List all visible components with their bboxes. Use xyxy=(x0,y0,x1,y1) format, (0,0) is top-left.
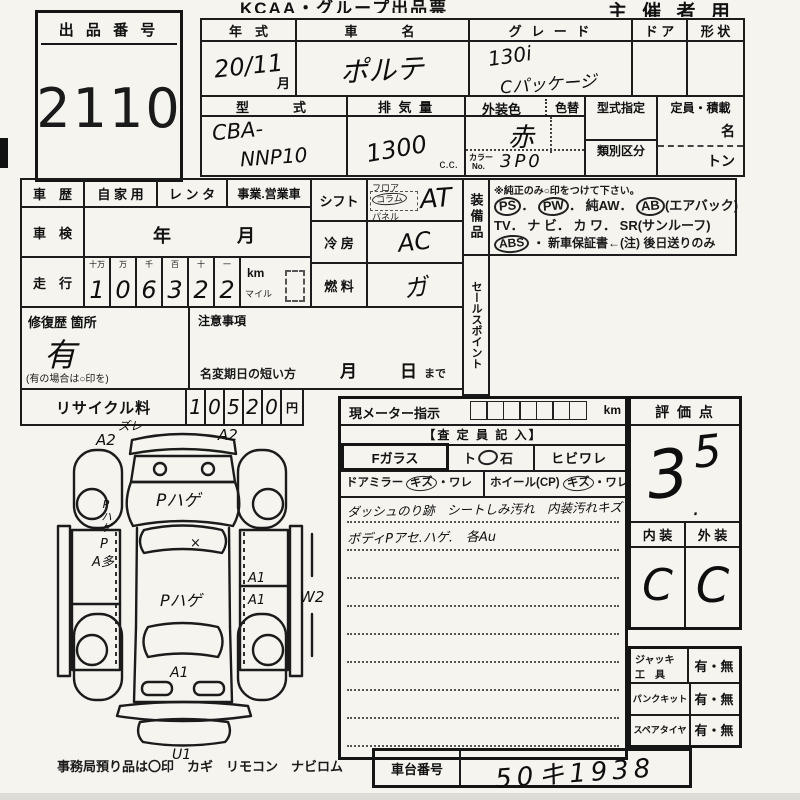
class-division-label: 類別区分 xyxy=(586,139,656,159)
wheel-ware: ・ワレ xyxy=(594,477,629,489)
color-value-cell: 赤 カラー No. 3P0 xyxy=(464,115,586,177)
door-value-cell xyxy=(631,40,688,97)
history-label: 車 歴 xyxy=(20,178,85,208)
mark-right-door-1: A1 xyxy=(247,571,265,586)
shaken-year-unit: 年 xyxy=(153,222,171,248)
jack-label-line2: 工 具 xyxy=(635,666,687,681)
tail-light-right xyxy=(194,682,224,695)
stone-chip-right: 石 xyxy=(500,448,513,467)
shift-dashed-box xyxy=(370,191,418,211)
type-designation-cell: 型式指定 類別区分 xyxy=(584,95,658,177)
meter-digit-box xyxy=(519,401,537,420)
fuel-label: 燃 料 xyxy=(310,262,368,308)
jack-value: 有・無 xyxy=(689,649,739,682)
interior-label: 内 装 xyxy=(631,523,686,546)
caution-box: 注意事項 名変期日の短い方 月 日 まで xyxy=(188,306,464,390)
sheet-owner-label: 主 催 者 用 xyxy=(608,0,788,17)
sheet-title-right-clip: 主 催 者 用 xyxy=(608,0,788,17)
shift-label: シフト xyxy=(310,178,368,222)
rear-window-shape xyxy=(144,623,223,657)
mirror-wheel-row: ドアミラー キズ・ワレ ホイール(CP) キズ・ワレ xyxy=(341,470,625,498)
grade-value-cell: 130i Cパッケージ xyxy=(468,40,633,97)
meter-digit-box xyxy=(486,401,504,420)
wiper-pivot-right xyxy=(202,463,214,475)
comment-ruled-line xyxy=(347,717,619,719)
wheel-rear-left xyxy=(77,635,107,665)
name-value-cell: ポルテ xyxy=(295,40,470,97)
mark-windshield-x: × xyxy=(190,536,201,551)
left-door-panel xyxy=(72,530,120,670)
name-value: ポルテ xyxy=(339,46,425,90)
inspector-comment-2: ボディPアセ.ハゲ. 各Au xyxy=(347,526,496,548)
lot-label: 出 品 番 号 xyxy=(41,15,177,45)
model-value-cell: CBA- NNP10 xyxy=(200,115,348,177)
mark-front-right: A2 xyxy=(217,426,238,444)
capacity-tons-unit: トン xyxy=(707,151,735,171)
shift-value: AT xyxy=(419,183,453,215)
comment-ruled-line xyxy=(347,745,619,747)
comment-ruled-line xyxy=(347,577,619,579)
shape-value-cell xyxy=(686,40,745,97)
mileage-label: 走 行 xyxy=(20,256,85,308)
cooling-label: 冷 房 xyxy=(310,220,368,264)
wheel-cell: ホイール(CP) キズ・ワレ xyxy=(485,470,625,496)
door-header: ド ア xyxy=(631,18,688,42)
meter-digit-boxes xyxy=(471,401,587,425)
equipment-vertical-label: 装備品 xyxy=(464,180,490,254)
auction-sheet: KCAA・グループ出品票 主 催 者 用 出 品 番 号 2110 年 式 車 … xyxy=(0,0,800,800)
capacity-divider xyxy=(658,145,743,147)
inspector-comment-1: ダッシュのり跡 シートしみ汚れ 内装汚れキズ xyxy=(347,497,622,521)
repair-label: 修復歴 箇所 xyxy=(28,312,97,331)
color-no-value: 3P0 xyxy=(500,151,543,172)
shaken-label: 車 検 xyxy=(20,206,85,258)
rename-month-unit: 月 xyxy=(340,357,357,382)
repair-box: 修復歴 箇所 有 (有の場合は○印を) xyxy=(20,306,190,390)
mark-left-door: A多 xyxy=(91,555,115,570)
mark-front-left-note: ズレ xyxy=(118,419,142,433)
mileage-digit-6: 一 2 xyxy=(213,256,241,308)
meter-digit-box xyxy=(470,401,488,420)
door-mirror-kizu: キズ xyxy=(406,475,438,492)
stone-chip-cell: ト 石 xyxy=(443,444,535,470)
mark-rear-bumper: U1 xyxy=(172,747,191,762)
grade-header: グ レ ー ド xyxy=(468,18,633,42)
mileage-mile-checkbox xyxy=(285,270,305,302)
stone-chip-circle-mark xyxy=(477,448,500,467)
type-designation-label: 型式指定 xyxy=(586,99,656,116)
chassis-value: 50キ1938 xyxy=(494,747,656,795)
year-header: 年 式 xyxy=(200,18,297,42)
scan-artifact-bar xyxy=(0,138,8,168)
mileage-digit: 0 xyxy=(111,274,135,306)
equipment-box: 装備品 ※純正のみ○印をつけて下さい。 PS． PW． 純AW． AB(エアバッ… xyxy=(462,178,737,256)
color-no-row: カラー No. 3P0 xyxy=(466,149,584,175)
history-opt-rental: レ ン タ xyxy=(156,178,228,208)
rear-skirt-shape xyxy=(138,719,230,746)
mileage-digit: 2 xyxy=(215,274,239,306)
door-mirror-cell: ドアミラー キズ・ワレ xyxy=(341,470,485,496)
equipment-line1: PS． PW． 純AW． AB(エアバック) xyxy=(494,195,738,216)
comment-ruled-line xyxy=(347,605,619,607)
sheet-title: KCAA・グループ出品票 xyxy=(240,0,540,13)
meter-digit-box xyxy=(569,401,587,420)
color-header-cell: 外装色 色替 xyxy=(464,95,586,117)
repair-note: (有の場合は○印を) xyxy=(26,370,109,385)
mileage-km-unit: km xyxy=(247,266,264,280)
color-change-header: 色替 xyxy=(545,99,579,116)
car-damage-diagram: ズレ A2 A2 Pハゲ Pハゲ × P A多 Pハゲ A1 A1 W2 A1 … xyxy=(22,414,338,762)
mileage-place-label: 十万 xyxy=(85,259,109,270)
mileage-digit-3: 千 6 xyxy=(135,256,163,308)
mileage-digit: 3 xyxy=(163,274,187,306)
interior-exterior-values: C C xyxy=(631,544,739,627)
comment-ruled-line xyxy=(347,549,619,551)
mileage-digit-2: 万 0 xyxy=(109,256,137,308)
roof-right-edge xyxy=(229,528,230,627)
comment-ruled-line xyxy=(347,521,619,523)
rename-until-label: まで xyxy=(424,365,446,381)
tools-row-jack: ジャッキ 工 具 有・無 xyxy=(631,649,739,684)
tailgate-right-edge xyxy=(230,627,232,702)
front-glass-cell: Fガラス xyxy=(341,443,449,471)
chassis-box: 車台番号 50キ1938 xyxy=(372,748,692,788)
mark-hood: Pハゲ xyxy=(156,491,203,511)
mileage-digit: 1 xyxy=(85,274,109,306)
cooling-value: AC xyxy=(397,226,433,257)
wheel-kizu: キズ xyxy=(562,475,594,492)
fuel-value-cell: ガ xyxy=(366,262,464,308)
mileage-digit: 2 xyxy=(189,274,213,306)
grade-line1: 130i xyxy=(487,41,534,71)
windshield-shape xyxy=(140,526,226,554)
equipment-ps: PS xyxy=(493,196,522,217)
sales-point-label: セールスポイント xyxy=(464,260,488,390)
tailgate-left-edge xyxy=(134,627,136,702)
rating-score-point: . xyxy=(691,498,700,521)
model-line2: NNP10 xyxy=(239,143,308,172)
year-month-suffix: 月 xyxy=(277,73,290,92)
displacement-value-cell: 1300 c.c. xyxy=(346,115,466,177)
equipment-warranty: ・ 新車保証書←(注) 後日送りのみ xyxy=(533,236,716,250)
equipment-abs: ABS xyxy=(493,234,529,254)
meter-label: 現メーター指示 xyxy=(349,403,440,422)
comment-ruled-line xyxy=(347,661,619,663)
equipment-aw: 純AW． xyxy=(586,198,633,213)
puncture-kit-value: 有・無 xyxy=(689,682,739,714)
equipment-line2: TV． ナ ビ． カ ワ． SR(サンルーフ) xyxy=(494,215,711,234)
rename-deadline-label: 名変期日の短い方 xyxy=(200,365,296,382)
wiper-pivot-left xyxy=(154,463,166,475)
exterior-label: 外 装 xyxy=(686,523,739,546)
jack-label: ジャッキ 工 具 xyxy=(631,649,689,682)
spare-tire-label: スペアタイヤ xyxy=(631,714,691,745)
sales-point-strip: セールスポイント xyxy=(462,254,490,396)
mark-right-side: W2 xyxy=(300,588,324,606)
mileage-unit-cell: km マイル xyxy=(239,256,312,308)
mileage-place-label: 千 xyxy=(137,259,161,270)
equipment-pw: PW xyxy=(537,196,569,217)
mileage-place-label: 一 xyxy=(215,259,239,270)
crack-cell: ヒビワレ xyxy=(533,444,625,470)
wheel-label: ホイール(CP) xyxy=(490,477,560,489)
comment-ruled-line xyxy=(347,633,619,635)
rename-day-unit: 日 xyxy=(400,357,417,382)
door-mirror-label: ドアミラー xyxy=(346,477,403,489)
tools-row-punctureskit: パンクキット 有・無 xyxy=(631,682,739,716)
meter-digit-box xyxy=(552,401,570,420)
chassis-label: 車台番号 xyxy=(375,751,461,785)
shape-header: 形 状 xyxy=(686,18,745,42)
mileage-place-label: 万 xyxy=(111,259,135,270)
stone-chip-left: ト xyxy=(463,448,476,467)
sheet-title-clip: KCAA・グループ出品票 xyxy=(240,0,540,13)
comment-ruled-line xyxy=(347,689,619,691)
exterior-grade: C xyxy=(686,544,739,627)
displacement-header: 排 気 量 xyxy=(346,95,466,117)
model-line1: CBA- xyxy=(211,117,264,145)
wheel-rear-right xyxy=(253,635,283,665)
equipment-ab: AB xyxy=(636,196,666,217)
cowl-shape xyxy=(131,456,235,482)
displacement-unit: c.c. xyxy=(439,157,458,171)
history-opt-private: 自 家 用 xyxy=(83,178,158,208)
meter-digit-box xyxy=(503,401,521,420)
mileage-place-label: 百 xyxy=(163,259,187,270)
capacity-cell: 定員・積載 名 トン xyxy=(656,95,745,177)
shift-value-cell: フロア コラム パネル AT xyxy=(366,178,464,222)
roof-left-edge xyxy=(136,528,137,627)
fuel-value: ガ xyxy=(401,266,430,304)
meter-digit-box xyxy=(536,401,554,420)
mileage-digit: 6 xyxy=(137,274,161,306)
capacity-label: 定員・積載 xyxy=(658,99,743,116)
left-sill-strip xyxy=(58,526,70,676)
history-opt-business: 事業.営業車 xyxy=(226,178,312,208)
rating-score-frac: 5 xyxy=(691,429,723,476)
equipment-sep: ． xyxy=(521,198,534,213)
equipment-line3: ABS ・ 新車保証書←(注) 後日送りのみ xyxy=(494,234,715,253)
glass-row: Fガラス ト 石 ヒビワレ xyxy=(341,444,625,472)
mark-left-door-p: P xyxy=(100,537,108,552)
mileage-mile-unit: マイル xyxy=(245,287,272,300)
shaken-value-cell: 年 月 xyxy=(83,206,312,258)
mark-tailgate: A1 xyxy=(169,665,188,681)
mileage-digit-1: 十万 1 xyxy=(83,256,111,308)
interior-grade: C xyxy=(631,544,686,627)
year-value: 20/11 xyxy=(213,48,285,83)
lot-number: 2110 xyxy=(38,63,180,153)
meter-km-unit: km xyxy=(604,403,621,417)
mark-left-fender: Pハゲ xyxy=(99,498,113,533)
mark-right-door-2: A1 xyxy=(247,593,265,608)
grade-line2: Cパッケージ xyxy=(499,67,597,99)
capacity-persons-unit: 名 xyxy=(721,121,735,141)
displacement-value: 1300 xyxy=(364,130,429,168)
mark-roof: Pハゲ xyxy=(160,591,205,610)
cooling-value-cell: AC xyxy=(366,220,464,264)
lot-box: 出 品 番 号 2110 xyxy=(35,10,183,182)
puncture-kit-label: パンクキット xyxy=(631,682,691,714)
wheel-front-right xyxy=(253,489,283,519)
equipment-sep: ． xyxy=(569,198,582,213)
tools-box: ジャッキ 工 具 有・無 パンクキット 有・無 スペアタイヤ 有・無 xyxy=(628,646,742,748)
color-no-label-2: No. xyxy=(472,162,485,171)
name-header: 車 名 xyxy=(295,18,470,42)
rating-score-whole: 3 xyxy=(643,440,692,510)
meter-box: 現メーター指示 km 【査 定 員 記 入】 Fガラス ト 石 ヒビワレ ドアミ… xyxy=(338,396,628,760)
rear-fender-left xyxy=(74,614,122,700)
mileage-digit-4: 百 3 xyxy=(161,256,189,308)
equipment-airbag: (エアバック) xyxy=(665,198,738,213)
tail-light-left xyxy=(142,682,172,695)
caution-label: 注意事項 xyxy=(198,312,246,329)
mark-front-left: A2 xyxy=(95,431,116,449)
rear-fender-right xyxy=(238,614,286,700)
model-header: 型 式 xyxy=(200,95,348,117)
door-mirror-ware: ・ワレ xyxy=(437,477,472,489)
rating-box: 評 価 点 3 . 5 内 装 外 装 C C xyxy=(628,396,742,630)
year-value-cell: 20/11 月 xyxy=(200,40,297,97)
tools-row-spare: スペアタイヤ 有・無 xyxy=(631,714,739,745)
mileage-digit-5: 十 2 xyxy=(187,256,215,308)
spare-tire-value: 有・無 xyxy=(689,714,739,745)
scan-bottom-band xyxy=(0,793,800,800)
jack-label-line1: ジャッキ xyxy=(635,651,687,666)
shaken-month-unit: 月 xyxy=(237,222,255,248)
mileage-place-label: 十 xyxy=(189,259,213,270)
color-change-divider xyxy=(550,117,552,153)
meter-row: 現メーター指示 km xyxy=(341,399,625,426)
rating-score: 3 . 5 xyxy=(626,420,743,527)
